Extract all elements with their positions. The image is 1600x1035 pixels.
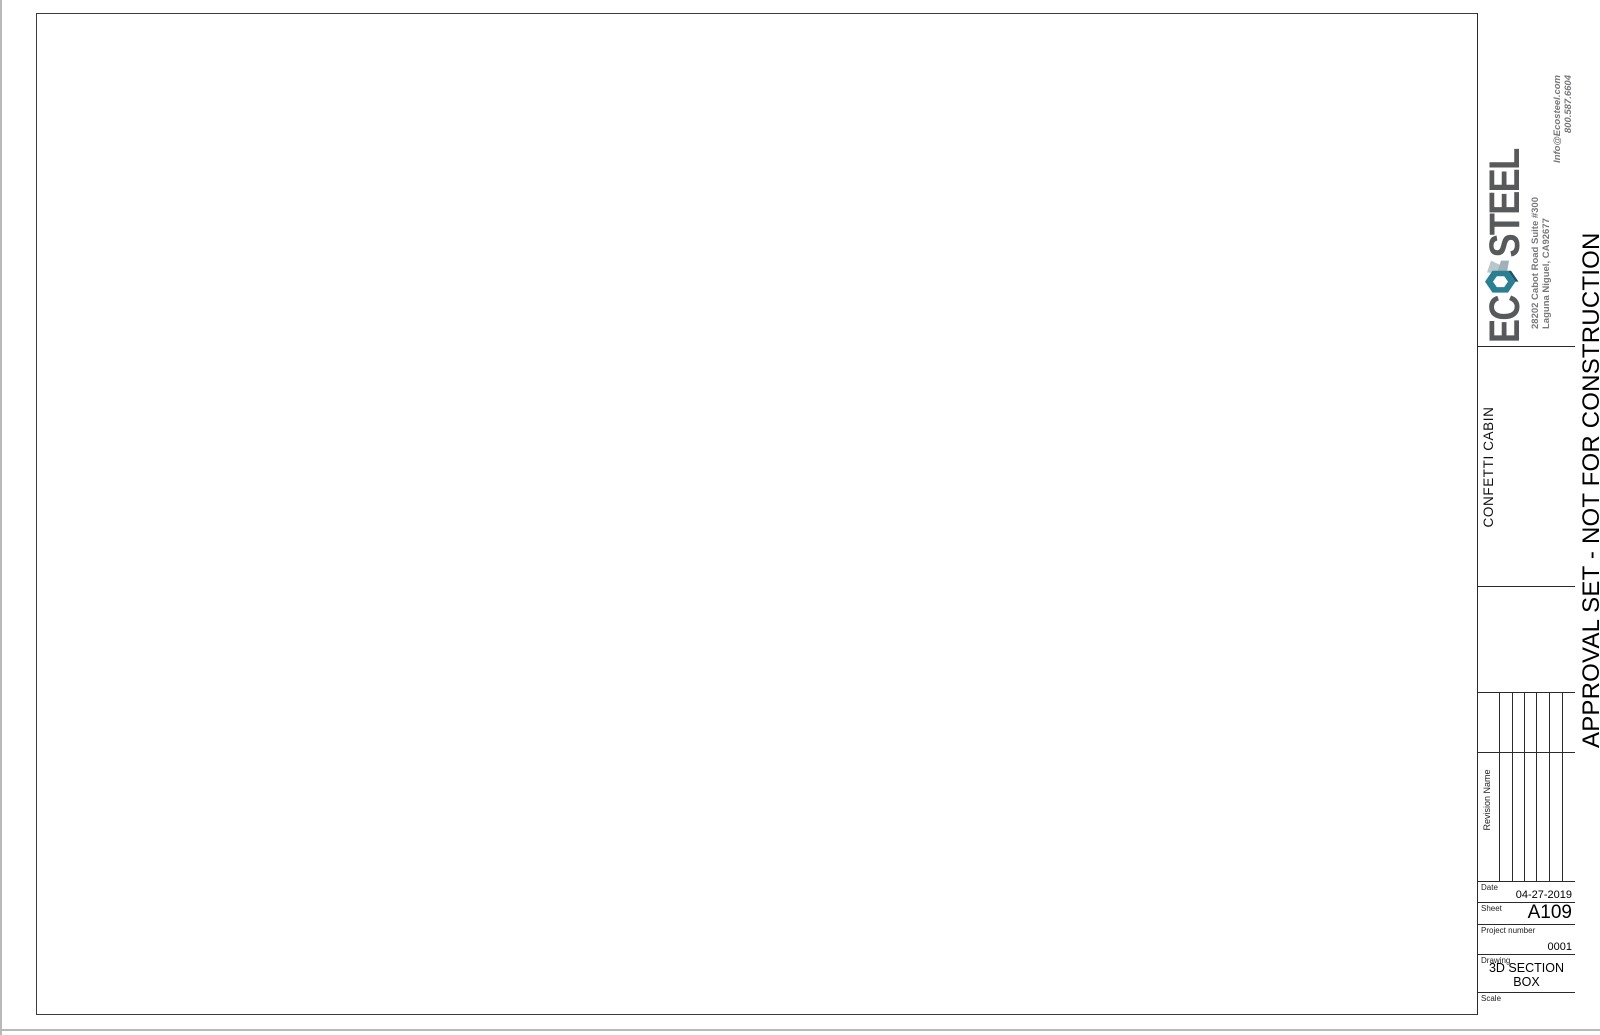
window-edge-bottom bbox=[0, 1029, 1600, 1031]
window-edge-left bbox=[0, 0, 2, 1035]
revision-name-header: Revision Name bbox=[1482, 757, 1494, 843]
ecosteel-logo: EC STEEL bbox=[1480, 69, 1530, 343]
sheet-number: A109 bbox=[1528, 902, 1572, 924]
drawing-title: 3D SECTION BOX bbox=[1478, 961, 1575, 989]
sheet-border bbox=[36, 13, 1574, 1015]
field-date: Date 04-27-2019 bbox=[1478, 882, 1575, 903]
ecosteel-logo-block: EC STEEL 28202 Cabot Road Suite #300 Lag… bbox=[1480, 17, 1573, 343]
logo-text-ec: EC bbox=[1484, 296, 1527, 343]
project-name: CONFETTI CABIN bbox=[1481, 353, 1497, 581]
logo-address-line1: 28202 Cabot Road Suite #300 bbox=[1530, 17, 1541, 343]
logo-contact-phone: 800.587.6604 bbox=[1563, 17, 1574, 343]
sheet-label: Sheet bbox=[1481, 904, 1502, 913]
title-block-empty-section bbox=[1478, 587, 1575, 693]
project-number-value: 0001 bbox=[1548, 941, 1572, 953]
logo-text-steel: STEEL bbox=[1484, 150, 1527, 258]
date-value: 04-27-2019 bbox=[1516, 889, 1572, 901]
logo-address-line2: Laguna Niguel, CA92677 bbox=[1541, 17, 1552, 343]
sheet-background: EC STEEL 28202 Cabot Road Suite #300 Lag… bbox=[0, 0, 1600, 1035]
title-block-logo-section: EC STEEL 28202 Cabot Road Suite #300 Lag… bbox=[1478, 13, 1575, 347]
field-drawing: Drawing 3D SECTION BOX bbox=[1478, 955, 1575, 993]
approval-set-banner: APPROVAL SET - NOT FOR CONSTRUCTION bbox=[1578, 300, 1600, 748]
project-number-label: Project number bbox=[1481, 926, 1535, 935]
scale-label: Scale bbox=[1481, 994, 1501, 1003]
logo-contact-email: Info@Ecosteel.com bbox=[1552, 17, 1563, 343]
field-sheet: Sheet A109 bbox=[1478, 903, 1575, 925]
revision-table-divider bbox=[1478, 752, 1575, 753]
field-project-number: Project number 0001 bbox=[1478, 925, 1575, 955]
hexagon-nut-logo-icon bbox=[1483, 258, 1528, 295]
field-scale: Scale bbox=[1478, 993, 1575, 1015]
date-label: Date bbox=[1481, 883, 1498, 892]
